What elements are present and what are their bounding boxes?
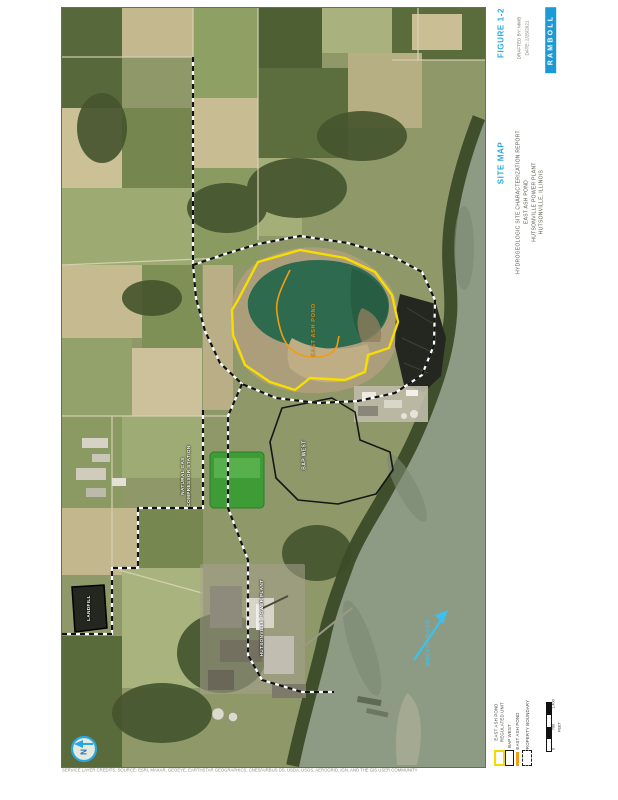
wabash-river-label: WABASH RIVER (425, 620, 432, 667)
compressor-station-label-line2: COMPRESSOR STATION (186, 445, 192, 506)
report-title-line1: HYDROGEOLOGIC SITE CHARACTERIZATION REPO… (516, 130, 524, 274)
north-arrow: N (70, 735, 98, 763)
legend-item-east-ash-pond-unit: EAST ASH POND REGULATED UNIT (494, 702, 507, 742)
compressor-station-label: NATURAL GAS COMPRESSOR STATION (180, 445, 192, 506)
pond-industrial-area (354, 386, 428, 422)
legend-item-bap-west: BAP WEST (507, 724, 513, 748)
map-title: SITE MAP (497, 142, 508, 185)
legend-swatch-orange-line (516, 752, 519, 766)
legend-swatch-yellow (494, 750, 505, 766)
legend-swatch-dashed (522, 750, 532, 766)
ramboll-logo-text: RAMBOLL (545, 7, 557, 73)
power-plant-label: HUTSONVILLE POWER PLANT (259, 580, 265, 657)
scale-unit: FEET (557, 722, 562, 732)
scale-label-mid: 700 (551, 724, 556, 730)
site-map: EAST ASH POND BAP WEST NATURAL GAS COMPR… (62, 8, 485, 767)
drafting-stamp-line1: DRAFTED BY: MWB (516, 17, 524, 60)
report-title-line3: HUTSONVILLE POWER PLANT (531, 130, 539, 274)
scale-label-zero: 0 (551, 748, 556, 750)
drafting-stamp-line2: DATE: 2/25/2021 (524, 17, 532, 60)
legend-item-property-boundary: PROPERTY BOUNDARY (525, 700, 531, 752)
green-pond (210, 452, 264, 508)
north-label: N (80, 749, 91, 755)
report-title-block: HYDROGEOLOGIC SITE CHARACTERIZATION REPO… (516, 130, 547, 274)
bap-west-label: BAP WEST (302, 440, 309, 470)
landfill-label: LANDFILL (86, 595, 92, 621)
figure-number: FIGURE 1-2 (497, 8, 508, 58)
figure-page: EAST ASH POND BAP WEST NATURAL GAS COMPR… (0, 0, 618, 800)
service-layer-credits: SERVICE LAYER CREDITS: SOURCE: ESRI, MAX… (62, 768, 487, 773)
scale-label-max: 1,400 (551, 699, 556, 709)
legend-item-east-ash-pond: EAST ASH POND (515, 712, 521, 749)
ramboll-logo: RAMBOLL (537, 7, 559, 73)
drafting-stamp: DRAFTED BY: MWB DATE: 2/25/2021 (516, 17, 533, 60)
legend-swatch-black (505, 750, 514, 766)
report-title-line4: HUTSONVILLE, ILLINOIS (539, 130, 547, 274)
legend-label-east-ash-pond-unit-line2: REGULATED UNIT (500, 702, 506, 742)
ash-pond-label: EAST ASH POND (311, 303, 319, 357)
aerial-imagery (62, 8, 485, 767)
report-title-line2: EAST ASH POND (523, 130, 531, 274)
